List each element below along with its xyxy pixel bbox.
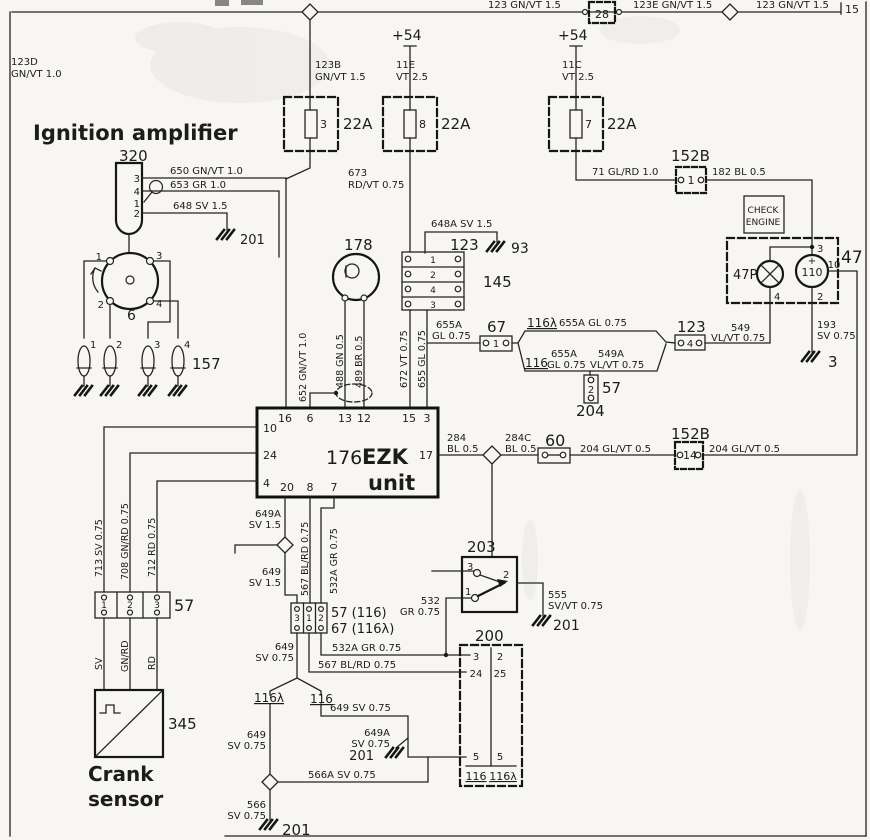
label: 1 [465,587,471,598]
wire-11e: 11E [396,60,415,71]
component-157-spark-plugs: 157 [192,355,221,373]
label: 1 [90,340,96,351]
label: SV 1.5 [249,520,281,531]
diagnostic-unit-200 [460,645,522,786]
label: RD/VT 0.75 [348,180,404,191]
connector-67: 67 [487,318,506,336]
label: 14 [683,449,697,462]
label: GR 0.75 [400,607,440,618]
label: 555 [548,590,567,601]
label: 489 BR 0.5 [354,336,365,388]
wire-123d: 123D [11,57,38,68]
wire-123b: 123B [315,60,341,71]
label: 655 GL 0.75 [417,330,428,388]
label: 116 [466,770,487,783]
fuse-8-number: 8 [419,118,426,131]
ezk-unit-box [104,408,483,603]
label: 549A [598,349,624,360]
label: SV [94,657,105,670]
label: 182 BL 0.5 [712,167,766,178]
top-feed-wire [12,2,841,23]
label: 1 [96,252,102,263]
connector-123-a: 123 [450,236,479,254]
label: 532A GR 0.75 [329,528,340,594]
label: VT 2.5 [396,72,428,83]
label: 648 SV 1.5 [173,201,228,212]
label: VL/VT 0.75 [590,360,644,371]
label: 649 [262,567,281,578]
connector-152b-14: 152B [671,425,710,443]
label: 1 [688,174,695,187]
fuse-8-rating: 22A [441,115,471,133]
label: 2 [497,652,503,663]
connector-67-116: 67 (116λ) [331,622,394,637]
label: 204 GL/VT 0.5 [580,444,651,455]
component-176: 176 [326,447,362,469]
label: 204 GL/VT 0.5 [709,444,780,455]
label: 2 [127,601,133,611]
label: 1 [430,256,436,266]
label: 655A [551,349,577,360]
label: 25 [494,669,507,680]
junction-diamond [302,4,318,20]
connector-145: 145 [483,273,512,291]
label: 652 GN/VT 1.0 [298,333,309,402]
fuse-3-rating: 22A [343,115,373,133]
label: 3 [134,174,140,185]
wire-648 [142,213,227,230]
label: 4 [184,340,190,351]
label: 4 [156,299,162,310]
label: 649 [247,730,266,741]
label: 3 [473,652,479,663]
label: 532 [421,596,440,607]
ground-symbol [487,242,504,251]
label: 655A [436,320,462,331]
connector-28-number: 28 [595,8,609,21]
rotation-arrow-icon [91,268,101,292]
ground-201-mid: 201 [349,749,374,764]
pulse-icon [100,705,120,713]
label: 284C [505,433,531,444]
junction-diamond [262,774,278,790]
label: 673 [348,168,367,179]
label: 567 BL/RD 0.75 [318,660,396,671]
ezk-pin-3: 3 [424,412,431,425]
label: 708 GN/RD 0.75 [120,503,131,580]
spark-plugs-157 [75,346,186,395]
label: 3 [467,562,473,573]
ground-201-switch: 201 [553,618,580,634]
label: 2 [116,340,122,351]
connector-57-mid: 57 [602,379,621,397]
label: 4 [774,292,780,303]
ground-201-a: 201 [240,233,265,248]
label: 566 [247,800,266,811]
label: 5 [497,752,503,763]
ezk-pin-12: 12 [357,412,371,425]
label: 3 [430,301,436,311]
label: SV 1.5 [249,578,281,589]
label: 284 [447,433,466,444]
connector-57-116: 57 (116) [331,606,387,621]
terminal-15: 15 [845,3,859,16]
ground-3: 3 [828,353,838,371]
label: 10 [828,260,841,271]
ezk-pin-15: 15 [402,412,416,425]
label: 1 [493,339,499,350]
connector-152b-1: 152B [671,147,710,165]
label: 567 BL/RD 0.75 [300,522,311,596]
label: 3 [817,244,823,255]
ground-201-bottom: 201 [282,821,311,839]
label: 649 SV 0.75 [330,703,391,714]
label: 3 [294,614,300,624]
component-203: 203 [467,538,496,556]
label: 4 [687,339,693,350]
junction-diamond [722,4,738,20]
label: 712 RD 0.75 [147,518,158,577]
label: 649 [275,642,294,653]
label: SV 0.75 [817,331,856,342]
label: SV/VT 0.75 [548,601,603,612]
label: VL/VT 0.75 [711,333,765,344]
wire-11c: 11C [562,60,582,71]
label: BL 0.5 [447,444,479,455]
label: 1 [101,601,107,611]
harness-116-lambda: 116λ [527,316,557,330]
label: GN/VT 1.5 [315,72,366,83]
label: BL 0.5 [505,444,537,455]
label: SV 0.75 [227,811,266,822]
crank-sensor-345 [95,690,163,757]
ground-symbol [217,230,234,239]
wire-123-gnvt-a: 123 GN/VT 1.5 [488,0,561,11]
label: 648A SV 1.5 [431,219,492,230]
label: 532A GR 0.75 [332,643,401,654]
label: 650 GN/VT 1.0 [170,166,243,177]
gauge-110: 110 [802,266,823,279]
wiring-diagram-page: 123 GN/VT 1.528123E GN/VT 1.5123 GN/VT 1… [0,0,870,840]
check-engine-text: CHECK [748,206,780,216]
ezk-pin-16: 16 [278,412,292,425]
ezk-pin-17: 17 [419,449,433,462]
fuse-7-rating: 22A [607,115,637,133]
label: 116λ [489,770,517,783]
ezk-pin-8: 8 [307,481,314,494]
label: RD [147,656,158,670]
label: 566A SV 0.75 [308,770,376,781]
ezk-pin-13: 13 [338,412,352,425]
annotation-unit: unit [368,471,415,495]
label: GN/VT 1.0 [11,69,62,80]
ezk-pin-24: 24 [263,449,277,462]
label: 3 [154,601,160,611]
connector-123-b: 123 [677,318,706,336]
label: SV 0.75 [255,653,294,664]
wire-123e-gnvt: 123E GN/VT 1.5 [633,0,712,11]
connector-204: 204 [576,402,605,420]
component-200: 200 [475,627,504,645]
junction-diamond [277,537,293,553]
label: SV 0.75 [227,741,266,752]
label: 2 [817,292,823,303]
label: VT 2.5 [562,72,594,83]
annotation-sensor: sensor [88,787,163,811]
annotation-ezk: EZK [362,445,409,469]
wire-712 [157,481,257,592]
fuse-3 [284,20,338,179]
label: 2 [134,209,140,220]
label: 672 VT 0.75 [399,330,410,388]
fuse-7-number: 7 [585,118,592,131]
label: ENGINE [746,218,781,228]
component-6-distributor: 6 [127,308,136,324]
label: 71 GL/RD 1.0 [592,167,658,178]
label: 116λ [254,691,284,705]
label: 649A [364,728,390,739]
component-47: 47 [841,248,863,268]
label: 649A [255,509,281,520]
label: 2 [430,271,436,281]
fuse-3-number: 3 [320,118,327,131]
annotation-ignition-amplifier: Ignition amplifier [33,121,238,145]
row-284 [483,442,703,557]
terminal-54-b: +54 [558,28,588,44]
label: 653 GR 1.0 [170,180,226,191]
ground-symbol [533,616,550,625]
terminal-54-a: +54 [392,28,422,44]
label: 3 [154,340,160,351]
ground-symbol [802,352,819,361]
label: − [808,282,816,293]
label: 193 [817,320,836,331]
harness-116: 116 [525,356,548,370]
ground-93: 93 [511,241,529,257]
ezk-pin-4: 4 [263,477,270,490]
label: 5 [473,752,479,763]
label: 2 [503,570,509,581]
label: 655A GL 0.75 [559,318,627,329]
ezk-pin-10: 10 [263,422,277,435]
ezk-pin-20: 20 [280,481,294,494]
connector-60: 60 [545,431,565,450]
component-345: 345 [168,715,197,733]
label: 4 [134,187,140,198]
annotation-crank: Crank [88,762,154,786]
scan-edge-marks [215,0,263,6]
junction-diamond [483,446,501,464]
label: 3 [156,251,162,262]
label: 24 [470,669,483,680]
label: 2 [98,300,104,311]
label: 488 GN 0.5 [335,334,346,388]
ezk-pin-7: 7 [331,481,338,494]
lamp-47p: 47P [733,268,758,283]
label: 4 [430,286,436,296]
label: GN/RD [120,640,131,672]
connector-57-crank: 57 [174,596,194,615]
component-178: 178 [344,236,373,254]
label: 1 [306,614,312,624]
wiring-diagram: 123 GN/VT 1.528123E GN/VT 1.5123 GN/VT 1… [0,0,870,840]
wire-123-gnvt-b: 123 GN/VT 1.5 [756,0,829,11]
label: 2 [588,385,594,396]
label: 2 [318,614,324,624]
ezk-pin-6: 6 [307,412,314,425]
distributor-6 [84,253,178,338]
label: + [808,256,816,267]
component-320: 320 [119,147,148,165]
label: 713 SV 0.75 [94,519,105,577]
label: GL 0.75 [432,331,471,342]
label: GL 0.75 [547,360,586,371]
